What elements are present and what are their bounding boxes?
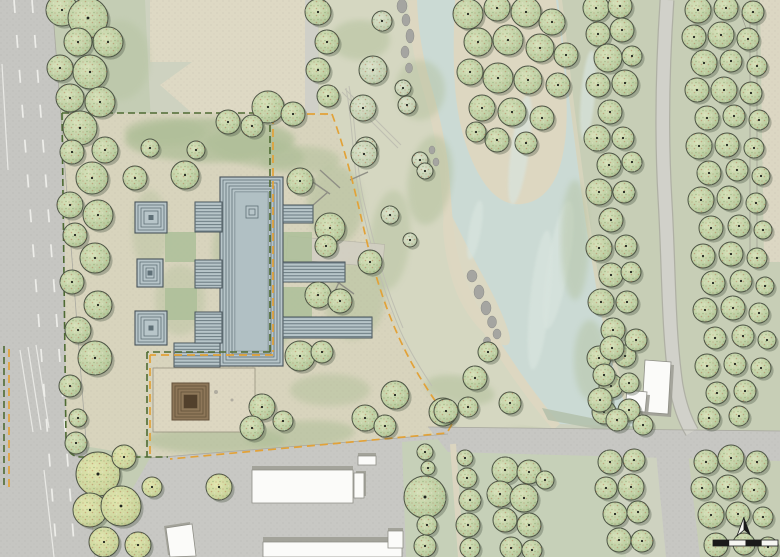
scale-bar bbox=[713, 540, 778, 546]
site-plan-map bbox=[0, 0, 780, 557]
site-plan-stage bbox=[0, 0, 780, 557]
brown-pavilion bbox=[153, 368, 255, 432]
